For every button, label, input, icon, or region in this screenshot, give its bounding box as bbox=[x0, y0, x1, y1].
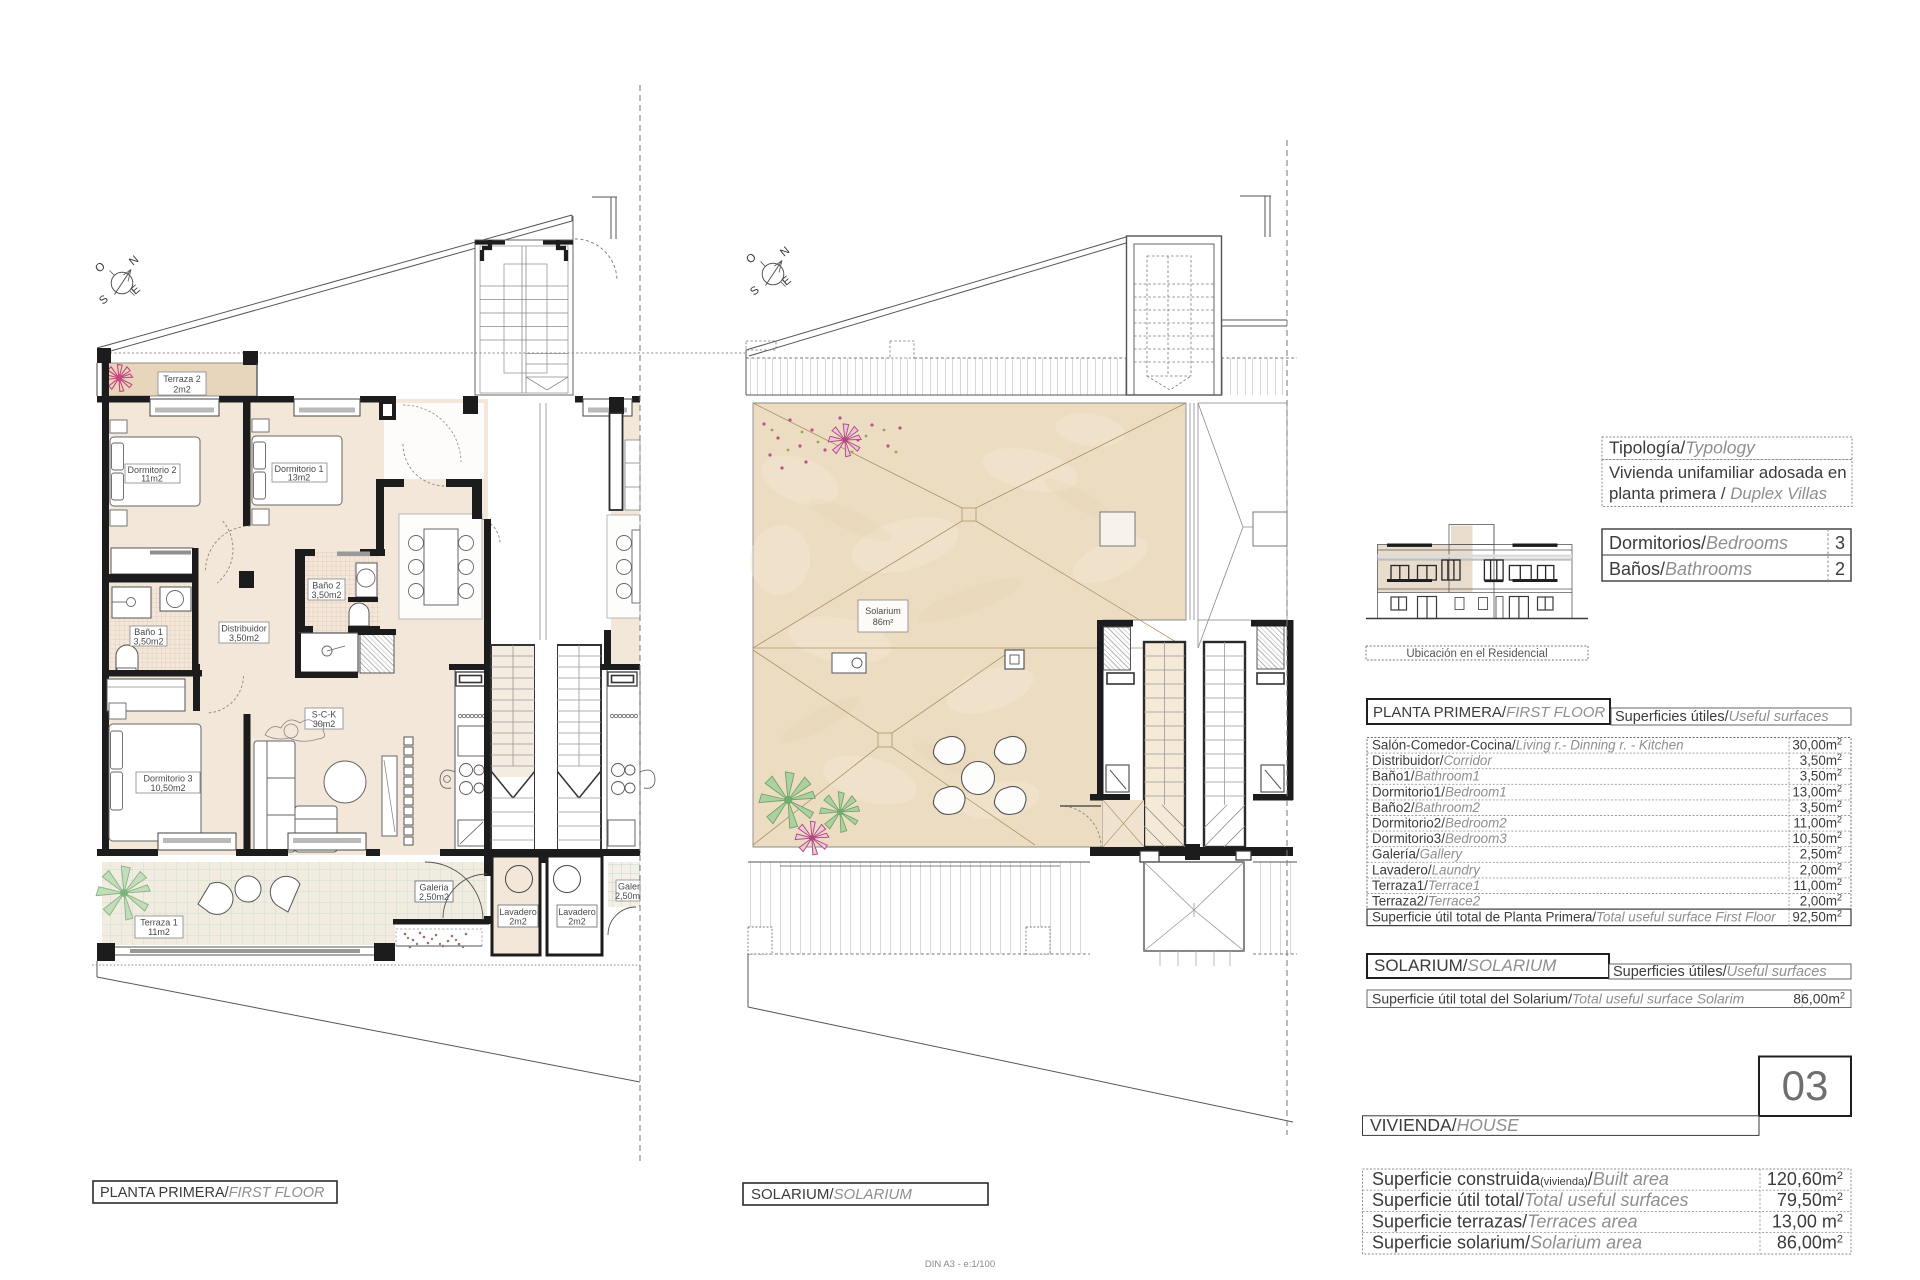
svg-text:2: 2 bbox=[1835, 559, 1845, 579]
svg-text:2,50m2: 2,50m2 bbox=[1800, 846, 1842, 862]
svg-text:2,50m2: 2,50m2 bbox=[419, 892, 449, 902]
svg-text:SOLARIUM/SOLARIUM: SOLARIUM/SOLARIUM bbox=[751, 1186, 912, 1203]
svg-text:03: 03 bbox=[1782, 1062, 1829, 1109]
svg-text:VIVIENDA/HOUSE: VIVIENDA/HOUSE bbox=[1370, 1115, 1519, 1135]
svg-text:Tipología/Typology: Tipología/Typology bbox=[1609, 438, 1756, 458]
svg-text:Salón-Comedor-Cocina/Living r.: Salón-Comedor-Cocina/Living r.- Dinning … bbox=[1372, 738, 1684, 753]
svg-text:3,50m2: 3,50m2 bbox=[1800, 799, 1842, 815]
svg-text:86,00m2: 86,00m2 bbox=[1777, 1233, 1843, 1253]
svg-text:2,00m2: 2,00m2 bbox=[1800, 861, 1842, 877]
svg-text:3: 3 bbox=[1835, 533, 1845, 553]
svg-text:Distribuidor: Distribuidor bbox=[221, 624, 267, 634]
svg-text:Superficie construida(vivienda: Superficie construida(vivienda)/Built ar… bbox=[1372, 1169, 1669, 1189]
svg-text:Superficie útil total de Plant: Superficie útil total de Planta Primera/… bbox=[1372, 910, 1776, 925]
svg-text:Baño 1: Baño 1 bbox=[134, 627, 163, 637]
svg-text:Superficies útiles/Useful surf: Superficies útiles/Useful surfaces bbox=[1613, 964, 1827, 980]
svg-text:Superficie solarium/Solarium a: Superficie solarium/Solarium area bbox=[1372, 1233, 1642, 1253]
svg-text:Terraza 2: Terraza 2 bbox=[163, 374, 201, 384]
svg-text:3,50m2: 3,50m2 bbox=[1800, 768, 1842, 784]
svg-text:3,50m2: 3,50m2 bbox=[1800, 752, 1842, 768]
svg-text:13,00 m2: 13,00 m2 bbox=[1772, 1211, 1843, 1231]
svg-text:Lavadero: Lavadero bbox=[499, 907, 537, 917]
svg-text:13,00m2: 13,00m2 bbox=[1792, 783, 1842, 799]
svg-text:30,00m2: 30,00m2 bbox=[1792, 737, 1842, 753]
svg-text:SOLARIUM/SOLARIUM: SOLARIUM/SOLARIUM bbox=[1374, 956, 1557, 975]
svg-text:11,00m2: 11,00m2 bbox=[1793, 877, 1842, 893]
svg-text:Terraza2/Terrace2: Terraza2/Terrace2 bbox=[1372, 894, 1481, 909]
svg-text:120,60m2: 120,60m2 bbox=[1767, 1169, 1843, 1189]
svg-text:Terraza1/Terrace1: Terraza1/Terrace1 bbox=[1372, 878, 1480, 893]
svg-text:79,50m2: 79,50m2 bbox=[1777, 1190, 1843, 1210]
svg-text:Terraza 1: Terraza 1 bbox=[140, 918, 178, 928]
svg-text:PLANTA PRIMERA/FIRST FLOOR: PLANTA PRIMERA/FIRST FLOOR bbox=[1373, 704, 1605, 721]
svg-text:Baño1/Bathroom1: Baño1/Bathroom1 bbox=[1372, 769, 1480, 784]
svg-text:Baño2/Bathroom2: Baño2/Bathroom2 bbox=[1372, 800, 1481, 815]
svg-text:Superficie útil total del Sola: Superficie útil total del Solarium/Total… bbox=[1372, 991, 1745, 1007]
svg-text:Dormitorio2/Bedroom2: Dormitorio2/Bedroom2 bbox=[1372, 816, 1507, 831]
svg-text:86,00m2: 86,00m2 bbox=[1793, 991, 1845, 1007]
svg-text:Superficies útiles/Useful surf: Superficies útiles/Useful surfaces bbox=[1615, 709, 1829, 725]
svg-text:Galeria: Galeria bbox=[419, 883, 448, 893]
svg-text:Distribuidor/Corridor: Distribuidor/Corridor bbox=[1372, 753, 1492, 768]
svg-text:Dormitorios/Bedrooms: Dormitorios/Bedrooms bbox=[1609, 533, 1788, 553]
svg-text:2m2: 2m2 bbox=[173, 385, 191, 395]
svg-text:13m2: 13m2 bbox=[288, 473, 311, 483]
svg-text:3,50m2: 3,50m2 bbox=[133, 637, 163, 647]
svg-text:10,50m2: 10,50m2 bbox=[150, 783, 185, 793]
svg-text:11,00m2: 11,00m2 bbox=[1793, 815, 1842, 831]
svg-text:3,50m2: 3,50m2 bbox=[311, 590, 341, 600]
svg-text:Baño 2: Baño 2 bbox=[312, 581, 341, 591]
svg-text:11m2: 11m2 bbox=[148, 927, 170, 937]
svg-text:planta primera / Duplex Villas: planta primera / Duplex Villas bbox=[1609, 484, 1828, 503]
svg-text:DIN A3 - e:1/100: DIN A3 - e:1/100 bbox=[925, 1259, 995, 1270]
svg-text:86m²: 86m² bbox=[873, 617, 894, 627]
svg-text:Lavadero/Laundry: Lavadero/Laundry bbox=[1372, 862, 1481, 877]
svg-text:Superficie terrazas/Terraces a: Superficie terrazas/Terraces area bbox=[1372, 1211, 1637, 1231]
svg-text:2m2: 2m2 bbox=[568, 917, 586, 927]
svg-text:Ubicación en el Residencial: Ubicación en el Residencial bbox=[1406, 648, 1547, 660]
svg-text:Lavadero: Lavadero bbox=[558, 907, 596, 917]
svg-text:Vivienda unifamiliar adosada e: Vivienda unifamiliar adosada en bbox=[1609, 463, 1847, 482]
svg-text:Baños/Bathrooms: Baños/Bathrooms bbox=[1609, 559, 1752, 579]
svg-text:3,50m2: 3,50m2 bbox=[229, 633, 259, 643]
svg-text:10,50m2: 10,50m2 bbox=[1792, 830, 1842, 846]
svg-text:Galer: Galer bbox=[618, 882, 640, 892]
svg-text:92,50m2: 92,50m2 bbox=[1792, 909, 1842, 925]
svg-text:Dormitorio3/Bedroom3: Dormitorio3/Bedroom3 bbox=[1372, 831, 1507, 846]
svg-text:Superficie útil total/Total us: Superficie útil total/Total useful surfa… bbox=[1372, 1190, 1689, 1210]
svg-text:2,50m: 2,50m bbox=[615, 891, 640, 901]
svg-text:11m2: 11m2 bbox=[141, 474, 163, 484]
svg-text:Galería/Gallery: Galería/Gallery bbox=[1372, 847, 1463, 862]
svg-text:S-C-K: S-C-K bbox=[312, 710, 337, 720]
svg-text:Dormitorio 3: Dormitorio 3 bbox=[143, 774, 192, 784]
svg-text:PLANTA PRIMERA/FIRST FLOOR: PLANTA PRIMERA/FIRST FLOOR bbox=[100, 1185, 325, 1201]
svg-text:2,00m2: 2,00m2 bbox=[1800, 893, 1842, 909]
svg-text:Solarium: Solarium bbox=[865, 606, 901, 616]
svg-text:Dormitorio1/Bedroom1: Dormitorio1/Bedroom1 bbox=[1372, 784, 1507, 799]
svg-text:2m2: 2m2 bbox=[509, 917, 527, 927]
